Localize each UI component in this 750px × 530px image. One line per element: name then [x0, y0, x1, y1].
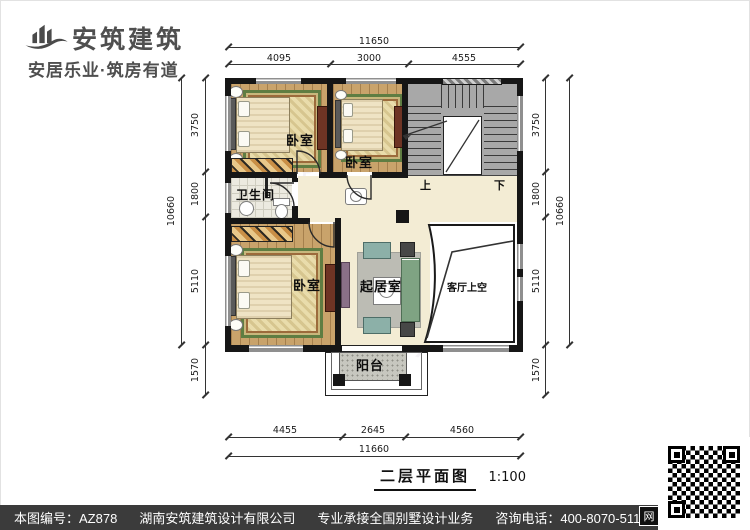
dim-right-seg-3: 5110	[531, 269, 542, 293]
pillow	[343, 103, 353, 117]
pillow	[238, 292, 250, 309]
room-label-bedroom-bottom-left: 卧室	[293, 275, 321, 294]
dim-line	[228, 47, 520, 48]
side-table	[400, 242, 415, 257]
drawing-scale: 1:100	[489, 470, 526, 485]
wall	[225, 78, 231, 95]
dim-tick	[517, 433, 524, 440]
wall	[517, 300, 523, 352]
dim-left-seg-3: 5110	[190, 269, 201, 293]
dim-line	[228, 64, 520, 65]
dim-bottom-seg-2: 2645	[361, 425, 385, 436]
dim-right-seg-1: 3750	[531, 113, 542, 137]
qr-finder	[668, 501, 685, 518]
dim-line	[569, 78, 570, 345]
pillow	[343, 129, 353, 143]
wall	[402, 345, 442, 352]
armchair	[363, 242, 391, 259]
sofa	[401, 258, 420, 322]
wall	[225, 325, 231, 352]
company-logo-icon	[24, 18, 70, 56]
dim-line	[545, 78, 546, 395]
dim-bottom-seg-1: 4455	[273, 425, 297, 436]
dim-tick	[517, 43, 524, 50]
company-full-name: 湖南安筑建筑设计有限公司	[139, 508, 295, 527]
dim-tick	[517, 60, 524, 67]
wall	[372, 172, 408, 178]
balcony-post-left	[333, 374, 345, 386]
window	[225, 255, 231, 327]
room-label-living: 起居室	[360, 276, 402, 295]
wall	[402, 78, 408, 175]
stair-window	[517, 95, 523, 152]
wall	[333, 172, 347, 178]
service-slogan: 专业承接全国别墅设计业务	[317, 508, 473, 527]
wall	[300, 78, 345, 84]
stair-up-label: 上	[420, 177, 431, 193]
window	[517, 276, 523, 302]
room-label-balcony: 阳台	[356, 355, 384, 374]
toilet-bowl	[275, 204, 288, 219]
dim-left-seg-4: 1570	[190, 358, 201, 382]
dim-line	[181, 78, 182, 345]
dim-top-total: 11650	[359, 36, 389, 47]
company-name: 安筑建筑	[72, 20, 184, 56]
dim-right-seg-4: 1570	[531, 358, 542, 382]
window	[517, 243, 523, 270]
window	[345, 78, 397, 84]
phone-number: 咨询电话：400-8070-511	[495, 508, 640, 527]
wall	[517, 78, 523, 95]
wall	[327, 78, 333, 172]
wall	[292, 178, 298, 182]
pillow	[238, 131, 250, 147]
dim-tick	[542, 391, 549, 398]
wardrobe	[231, 226, 293, 242]
side-table	[400, 322, 415, 337]
dim-tick	[566, 341, 573, 348]
window	[255, 78, 302, 84]
wall	[225, 218, 310, 224]
dim-top-seg-3: 4555	[452, 53, 476, 64]
drawing-title: 二层平面图	[374, 465, 476, 491]
wall	[225, 172, 297, 178]
dim-bottom-seg-3: 4560	[450, 425, 474, 436]
floor-plan-page: 安筑建筑 安居乐业·筑房有道 安筑建筑 安筑建筑	[0, 0, 750, 530]
dim-left-seg-1: 3750	[190, 113, 201, 137]
stair-top-flight	[441, 84, 485, 108]
qr-finder	[723, 446, 740, 463]
wall	[302, 345, 342, 352]
dim-tick	[202, 391, 209, 398]
room-label-bathroom: 卫生间	[236, 186, 275, 203]
window	[225, 95, 231, 152]
dim-top-seg-2: 3000	[357, 53, 381, 64]
dim-line	[228, 437, 520, 438]
stair-down-label: 下	[494, 177, 505, 193]
company-tagline: 安居乐业·筑房有道	[28, 56, 179, 81]
balcony-sliding-door	[342, 345, 402, 352]
tv-stand	[341, 262, 350, 308]
room-label-void: 客厅上空	[447, 279, 487, 294]
dim-left-seg-2: 1800	[190, 182, 201, 206]
dim-top-seg-1: 4095	[267, 53, 291, 64]
pillow	[238, 101, 250, 117]
dim-line	[205, 78, 206, 395]
dim-right-seg-2: 1800	[531, 182, 542, 206]
nightstand	[229, 319, 243, 331]
dim-tick	[517, 452, 524, 459]
footer-bar: 本图编号：AZ878 湖南安筑建筑设计有限公司 专业承接全国别墅设计业务 咨询电…	[0, 505, 750, 530]
armchair	[363, 317, 391, 334]
window	[248, 345, 304, 352]
room-label-bedroom-top-left: 卧室	[286, 130, 314, 149]
dim-right-total: 10660	[555, 196, 566, 226]
bathroom-sink	[239, 201, 254, 216]
balcony-post-right	[399, 374, 411, 386]
hall-washbasin-bowl	[350, 191, 362, 202]
bathroom-window	[225, 182, 231, 214]
stair-left-flight	[408, 106, 441, 175]
qr-finder	[668, 446, 685, 463]
qr-code	[668, 446, 740, 518]
web-badge: 网	[639, 506, 659, 526]
dim-left-total: 10660	[166, 196, 177, 226]
stair-landing	[443, 116, 482, 175]
window	[442, 345, 510, 352]
qr-panel	[658, 437, 750, 530]
dim-bottom-total: 11660	[359, 444, 389, 455]
pillow	[238, 260, 250, 277]
drawing-title-block: 二层平面图 1:100	[340, 465, 560, 491]
drawing-number: 本图编号：AZ878	[14, 508, 117, 527]
stair-right-flight	[484, 106, 517, 175]
room-label-bedroom-top-mid: 卧室	[345, 152, 373, 171]
wall	[335, 224, 341, 345]
stair-window	[442, 78, 502, 85]
dim-line	[228, 456, 520, 457]
structural-column	[396, 210, 409, 223]
wall	[517, 150, 523, 243]
dim-tick	[178, 341, 185, 348]
wall	[319, 172, 333, 178]
